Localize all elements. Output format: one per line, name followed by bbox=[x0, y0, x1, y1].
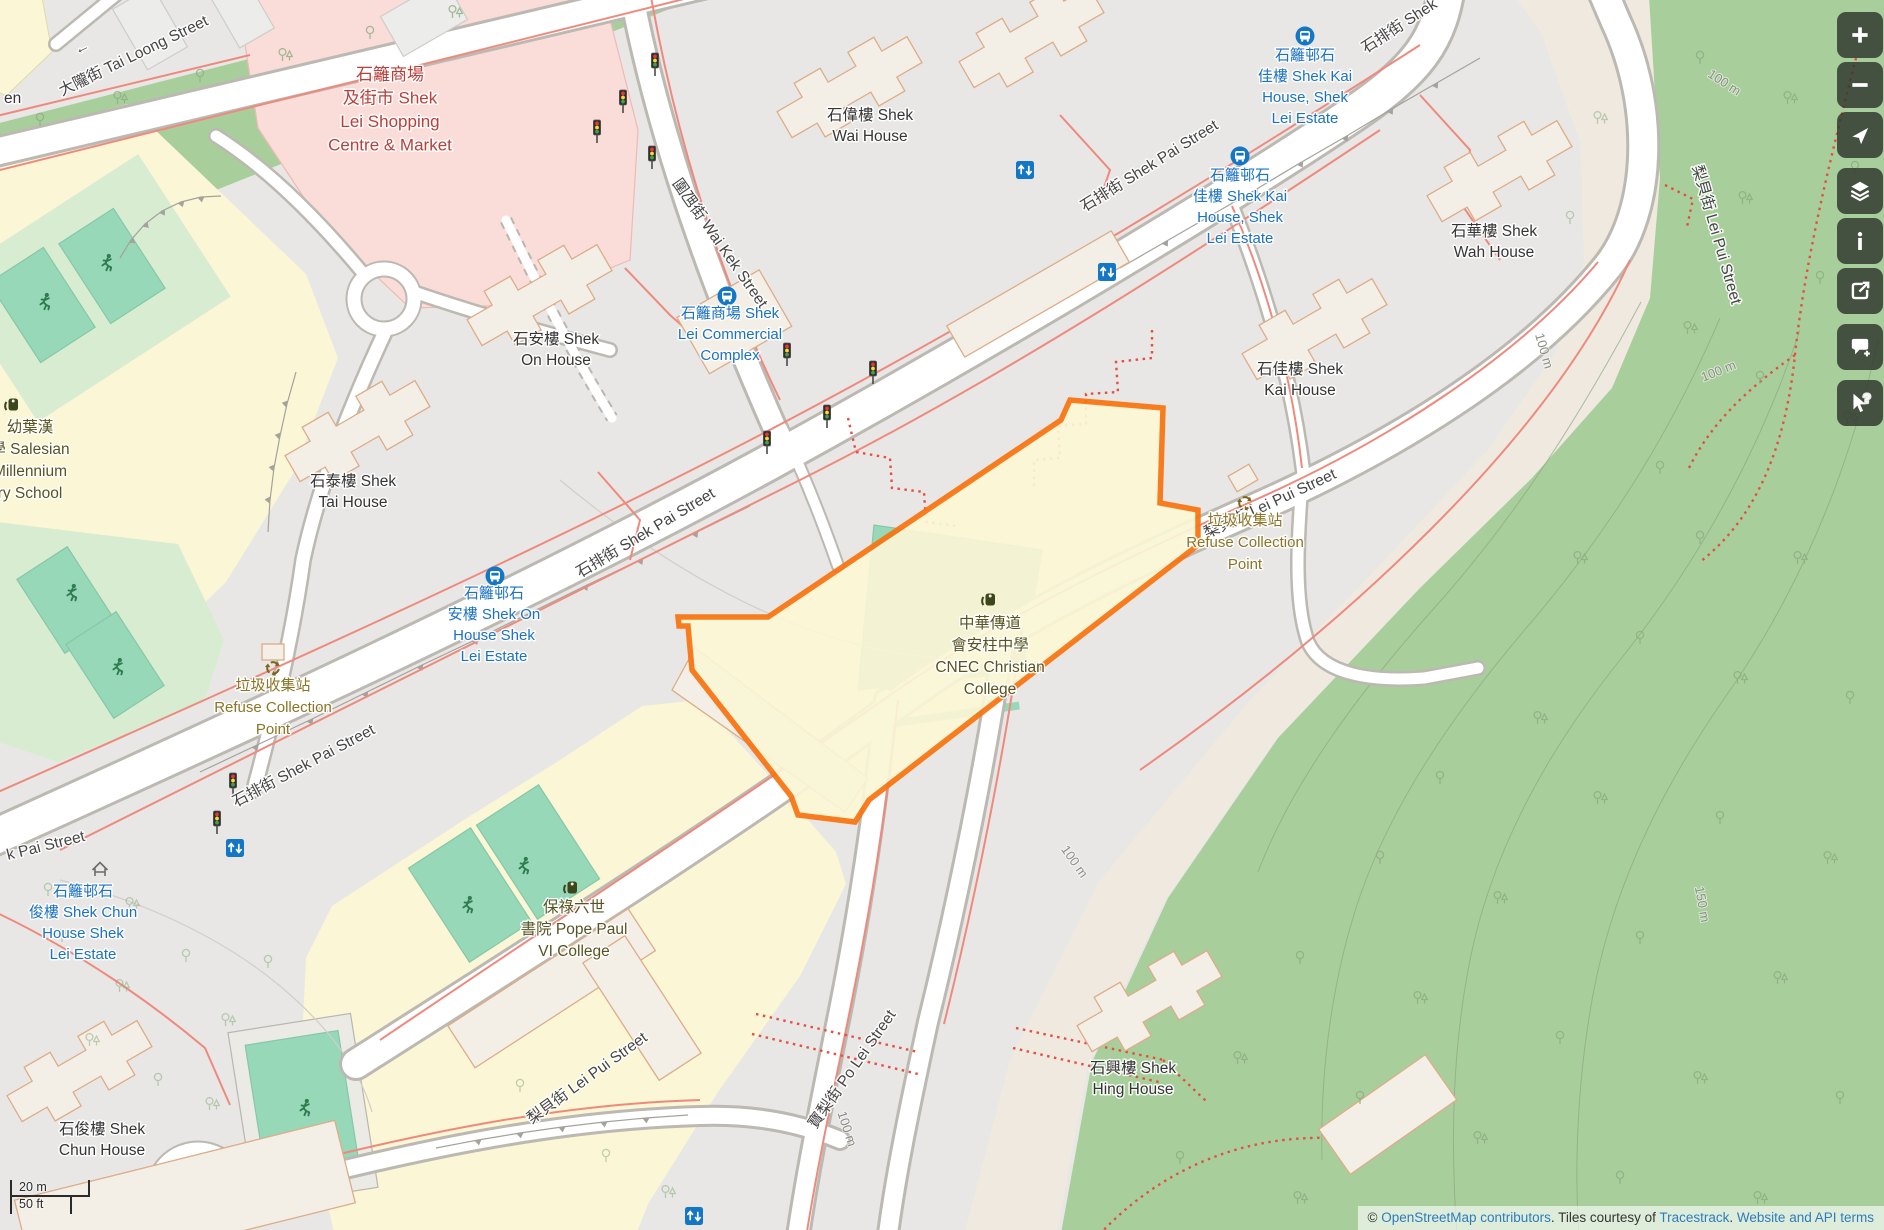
map-canvas[interactable]: ? bbox=[0, 0, 1884, 1230]
osm-contributors-link[interactable]: OpenStreetMap contributors bbox=[1381, 1210, 1551, 1225]
layers-button[interactable] bbox=[1837, 168, 1883, 214]
elevator-icon bbox=[1016, 161, 1034, 179]
attribution-prefix: © bbox=[1368, 1210, 1382, 1225]
elevator-icon bbox=[226, 839, 244, 857]
scale-imperial: 50 ft bbox=[10, 1197, 72, 1214]
terms-link[interactable]: Website and API terms bbox=[1737, 1210, 1874, 1225]
elevator-icon bbox=[685, 1207, 703, 1225]
bus-icon bbox=[718, 287, 737, 306]
info-icon bbox=[1848, 229, 1872, 253]
share-icon bbox=[1848, 279, 1872, 303]
share-button[interactable] bbox=[1837, 268, 1883, 314]
svg-text:en: en bbox=[4, 90, 21, 107]
minus-icon bbox=[1848, 73, 1872, 97]
query-icon bbox=[1848, 391, 1872, 415]
map-viewport[interactable]: ? bbox=[0, 0, 1884, 1230]
add-note-button[interactable] bbox=[1837, 324, 1883, 370]
bus-icon bbox=[1296, 27, 1315, 46]
note-icon bbox=[1848, 335, 1872, 359]
zoom-in-button[interactable] bbox=[1837, 12, 1883, 58]
scale-bar: 20 m 50 ft bbox=[10, 1180, 90, 1214]
map-key-button[interactable] bbox=[1837, 218, 1883, 264]
locate-icon bbox=[1848, 123, 1872, 147]
layers-icon bbox=[1848, 179, 1872, 203]
elevator-icon bbox=[1098, 263, 1116, 281]
zoom-out-button[interactable] bbox=[1837, 62, 1883, 108]
scale-metric: 20 m bbox=[10, 1180, 90, 1197]
bus-icon bbox=[486, 567, 505, 586]
place-fragment-en: en bbox=[4, 90, 21, 107]
plus-icon bbox=[1848, 23, 1872, 47]
bus-icon bbox=[1231, 147, 1250, 166]
locate-button[interactable] bbox=[1837, 112, 1883, 158]
query-features-button[interactable] bbox=[1837, 380, 1883, 426]
attribution: © OpenStreetMap contributors. Tiles cour… bbox=[1358, 1206, 1884, 1230]
tracestrack-link[interactable]: Tracestrack bbox=[1659, 1210, 1729, 1225]
